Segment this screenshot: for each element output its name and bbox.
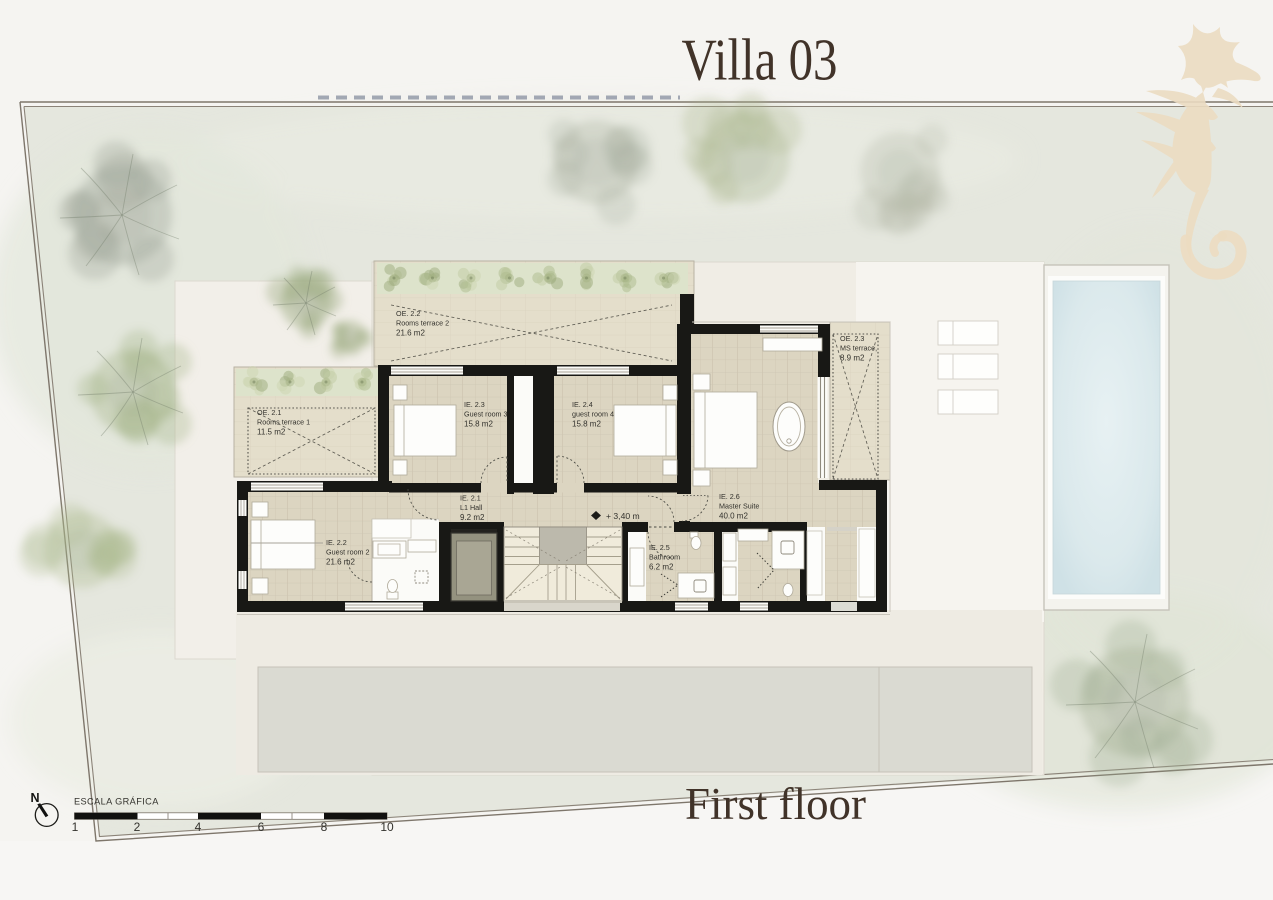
svg-text:Master Suite: Master Suite: [719, 501, 759, 510]
svg-text:guest room 4: guest room 4: [572, 409, 614, 418]
svg-text:Villa 03: Villa 03: [682, 27, 838, 93]
svg-text:15.8 m2: 15.8 m2: [572, 419, 601, 428]
svg-text:6.2 m2: 6.2 m2: [649, 562, 674, 571]
svg-text:2: 2: [134, 820, 141, 834]
svg-text:8.9 m2: 8.9 m2: [840, 353, 865, 362]
svg-text:IE. 2.4: IE. 2.4: [572, 400, 593, 409]
svg-text:1: 1: [72, 820, 79, 834]
svg-text:IE. 2.6: IE. 2.6: [719, 492, 740, 501]
svg-text:Guest room 3: Guest room 3: [464, 409, 508, 418]
svg-text:21.6 m2: 21.6 m2: [326, 557, 355, 566]
svg-text:ESCALA GRÁFICA: ESCALA GRÁFICA: [74, 797, 159, 807]
svg-text:4: 4: [195, 820, 202, 834]
svg-text:OE. 2.2: OE. 2.2: [396, 309, 420, 318]
svg-text:IE. 2.2: IE. 2.2: [326, 538, 347, 547]
svg-text:N: N: [31, 791, 40, 805]
svg-text:11.5 m2: 11.5 m2: [257, 427, 286, 436]
svg-text:10: 10: [380, 820, 394, 834]
svg-text:21.6 m2: 21.6 m2: [396, 328, 425, 337]
svg-text:6: 6: [258, 820, 265, 834]
svg-text:Guest room 2: Guest room 2: [326, 547, 370, 556]
svg-text:OE. 2.3: OE. 2.3: [840, 334, 864, 343]
svg-text:40.0 m2: 40.0 m2: [719, 511, 748, 520]
svg-text:+ 3,40 m: + 3,40 m: [606, 511, 640, 521]
svg-text:9.2 m2: 9.2 m2: [460, 513, 485, 522]
svg-text:IE. 2.1: IE. 2.1: [460, 494, 481, 503]
svg-text:Bathroom: Bathroom: [649, 552, 680, 561]
svg-text:8: 8: [321, 820, 328, 834]
svg-text:IE. 2.3: IE. 2.3: [464, 400, 485, 409]
svg-text:Rooms terrace 2: Rooms terrace 2: [396, 318, 449, 327]
svg-text:OE. 2.1: OE. 2.1: [257, 408, 281, 417]
svg-text:MS terrace,: MS terrace,: [840, 343, 877, 352]
svg-text:L1 Hall: L1 Hall: [460, 503, 483, 512]
svg-text:15.8 m2: 15.8 m2: [464, 419, 493, 428]
svg-text:IE. 2.5: IE. 2.5: [649, 543, 670, 552]
svg-text:First floor: First floor: [685, 779, 866, 829]
svg-text:Rooms terrace 1: Rooms terrace 1: [257, 417, 310, 426]
